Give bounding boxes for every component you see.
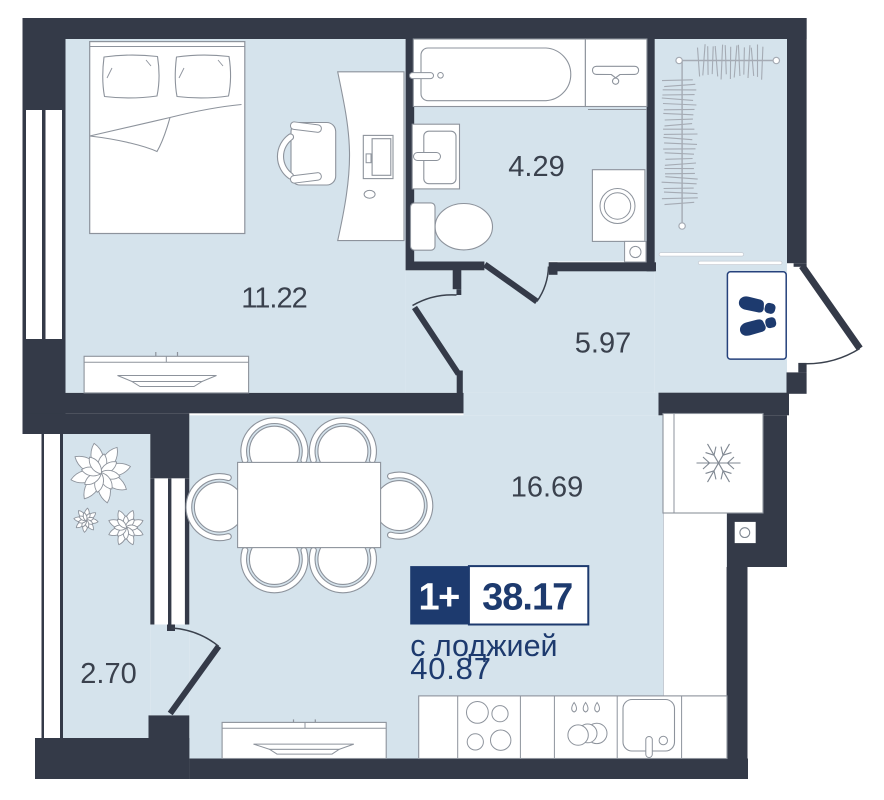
svg-text:4.29: 4.29 [508, 151, 564, 183]
svg-text:2.70: 2.70 [80, 658, 136, 690]
svg-text:11.22: 11.22 [241, 283, 306, 315]
svg-text:40.87: 40.87 [410, 651, 492, 686]
svg-text:16.69: 16.69 [511, 472, 584, 504]
svg-text:38.17: 38.17 [482, 577, 572, 619]
svg-text:5.97: 5.97 [575, 328, 631, 360]
svg-text:1+: 1+ [419, 577, 460, 619]
